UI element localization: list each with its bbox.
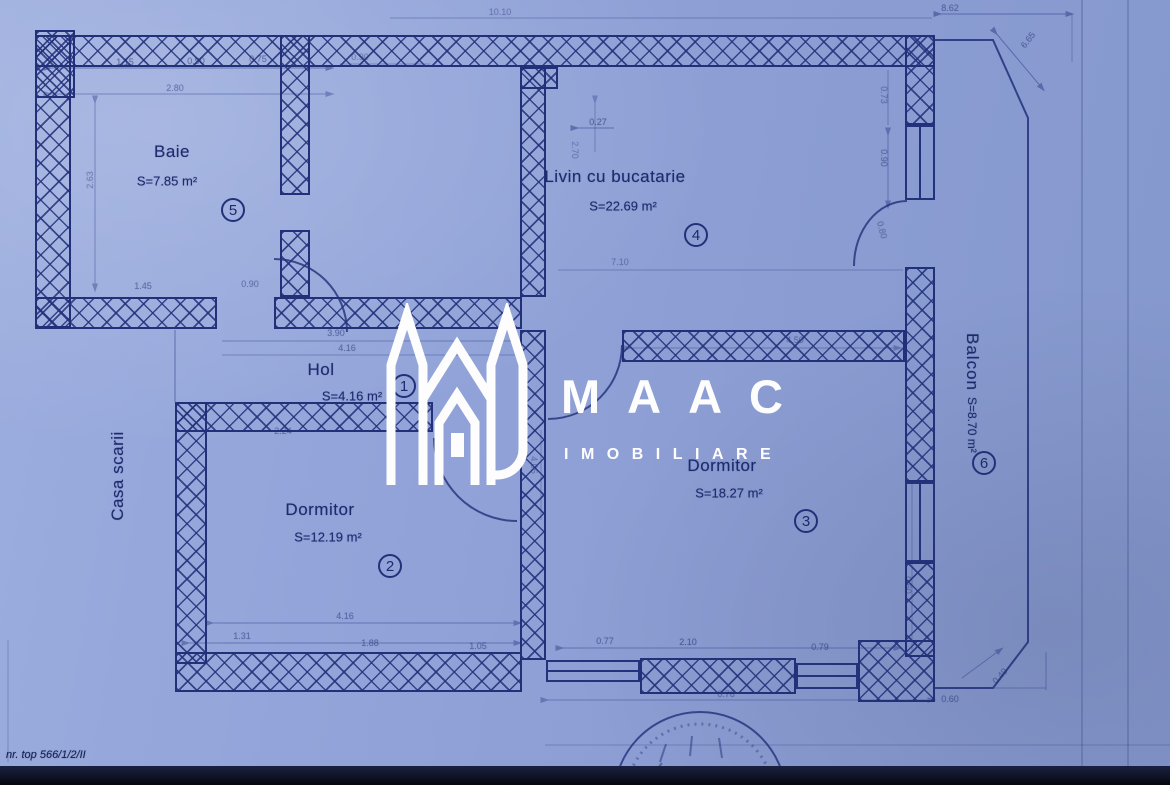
room-name-dormitor2: Dormitor [285, 500, 354, 520]
room-number-dormitor2: 2 [378, 554, 402, 578]
dimension-d2_top: 2.24 [274, 426, 292, 436]
dimension-br_a: 0.60 [941, 694, 959, 704]
window-dorm3-a [546, 660, 640, 682]
room-area-dormitor2: S=12.19 m² [294, 530, 362, 545]
dimension-d2_c: 1.05 [469, 641, 487, 651]
dimension-left_a: 1.45 [134, 281, 152, 291]
dimension-r_v2: 0.90 [879, 149, 889, 167]
dimension-total_w: 6.76 [717, 689, 735, 699]
wall-baie-right-a [280, 35, 310, 195]
room-number-hol: 1 [392, 374, 416, 398]
room-number-baie: 5 [221, 198, 245, 222]
window-living [905, 125, 935, 200]
window-dorm3-b [796, 663, 858, 689]
wall-mid-vert [520, 330, 546, 660]
dimension-baie_a: 1.15 [116, 57, 134, 67]
wall-mid-a [35, 297, 217, 329]
room-number-balcon: 6 [972, 451, 996, 475]
dimension-d2_a: 1.31 [233, 631, 251, 641]
dimension-corr_top: 0.90 [351, 52, 369, 62]
wall-living-left [520, 67, 546, 297]
wall-top [35, 35, 935, 67]
dimension-baie_total: 2.80 [166, 83, 184, 93]
dimension-d3_top: 4.50 [786, 335, 804, 345]
cadastral-note: nr. top 566/1/2/II [6, 749, 86, 761]
photo-dark-edge [0, 766, 1170, 785]
wall-right-a [905, 35, 935, 125]
dimension-d3_a: 0.77 [596, 636, 614, 646]
room-name-casa_scarii: Casa scarii [108, 431, 128, 521]
dimension-r_v1: 0.73 [879, 86, 889, 104]
dimension-step: 0.27 [589, 117, 607, 127]
dimension-baie_b: 0.90 [187, 56, 205, 66]
dimension-step_v: 2.70 [570, 141, 580, 159]
dimension-liv_w: 7.10 [611, 257, 629, 267]
dimension-tr_width: 8.62 [941, 3, 959, 13]
blueprint-photo: BaieS=7.85 m²5Livin cu bucatarieS=22.69 … [0, 0, 1170, 785]
wall-right-c [905, 267, 935, 482]
dimension-hol_a: 3.90 [327, 328, 345, 338]
room-area-baie: S=7.85 m² [137, 174, 197, 189]
room-name-dormitor3: Dormitor [687, 456, 756, 476]
room-area-dormitor3: S=18.27 m² [695, 486, 763, 501]
wall-left [35, 35, 71, 328]
dimension-baie_c: 0.75 [249, 54, 267, 64]
dimension-r_v3: 0.60 [903, 576, 913, 594]
dimension-mid_v: 4.05 [529, 456, 539, 474]
room-area-living: S=22.69 m² [589, 199, 657, 214]
dimension-hol_b: 4.16 [338, 343, 356, 353]
dimension-d3_c: 0.79 [811, 642, 829, 652]
room-name-baie: Baie [154, 142, 190, 162]
room-number-dormitor3: 3 [794, 509, 818, 533]
dimension-left_v: 2.63 [85, 171, 95, 189]
wall-dorm3-bottom-b [858, 640, 935, 702]
room-name-living: Livin cu bucatarie [544, 167, 685, 187]
dimension-d2_w: 4.16 [336, 611, 354, 621]
room-label-balcon: BalconS=8.70 m² [962, 333, 982, 453]
dimension-d3_b: 2.10 [679, 637, 697, 647]
wall-dorm2-left [175, 402, 207, 664]
dimension-d2_b: 1.88 [361, 638, 379, 648]
wall-dorm3-top [622, 330, 905, 362]
room-number-living: 4 [684, 223, 708, 247]
window-balcony [905, 482, 935, 562]
wall-dorm2-top [175, 402, 433, 432]
room-area-hol: S=4.16 m² [322, 389, 382, 404]
dimension-top_width: 10.10 [489, 7, 512, 17]
room-name-hol: Hol [307, 360, 334, 380]
wall-dorm2-bottom [175, 652, 522, 692]
dimension-left_b: 0.90 [241, 279, 259, 289]
